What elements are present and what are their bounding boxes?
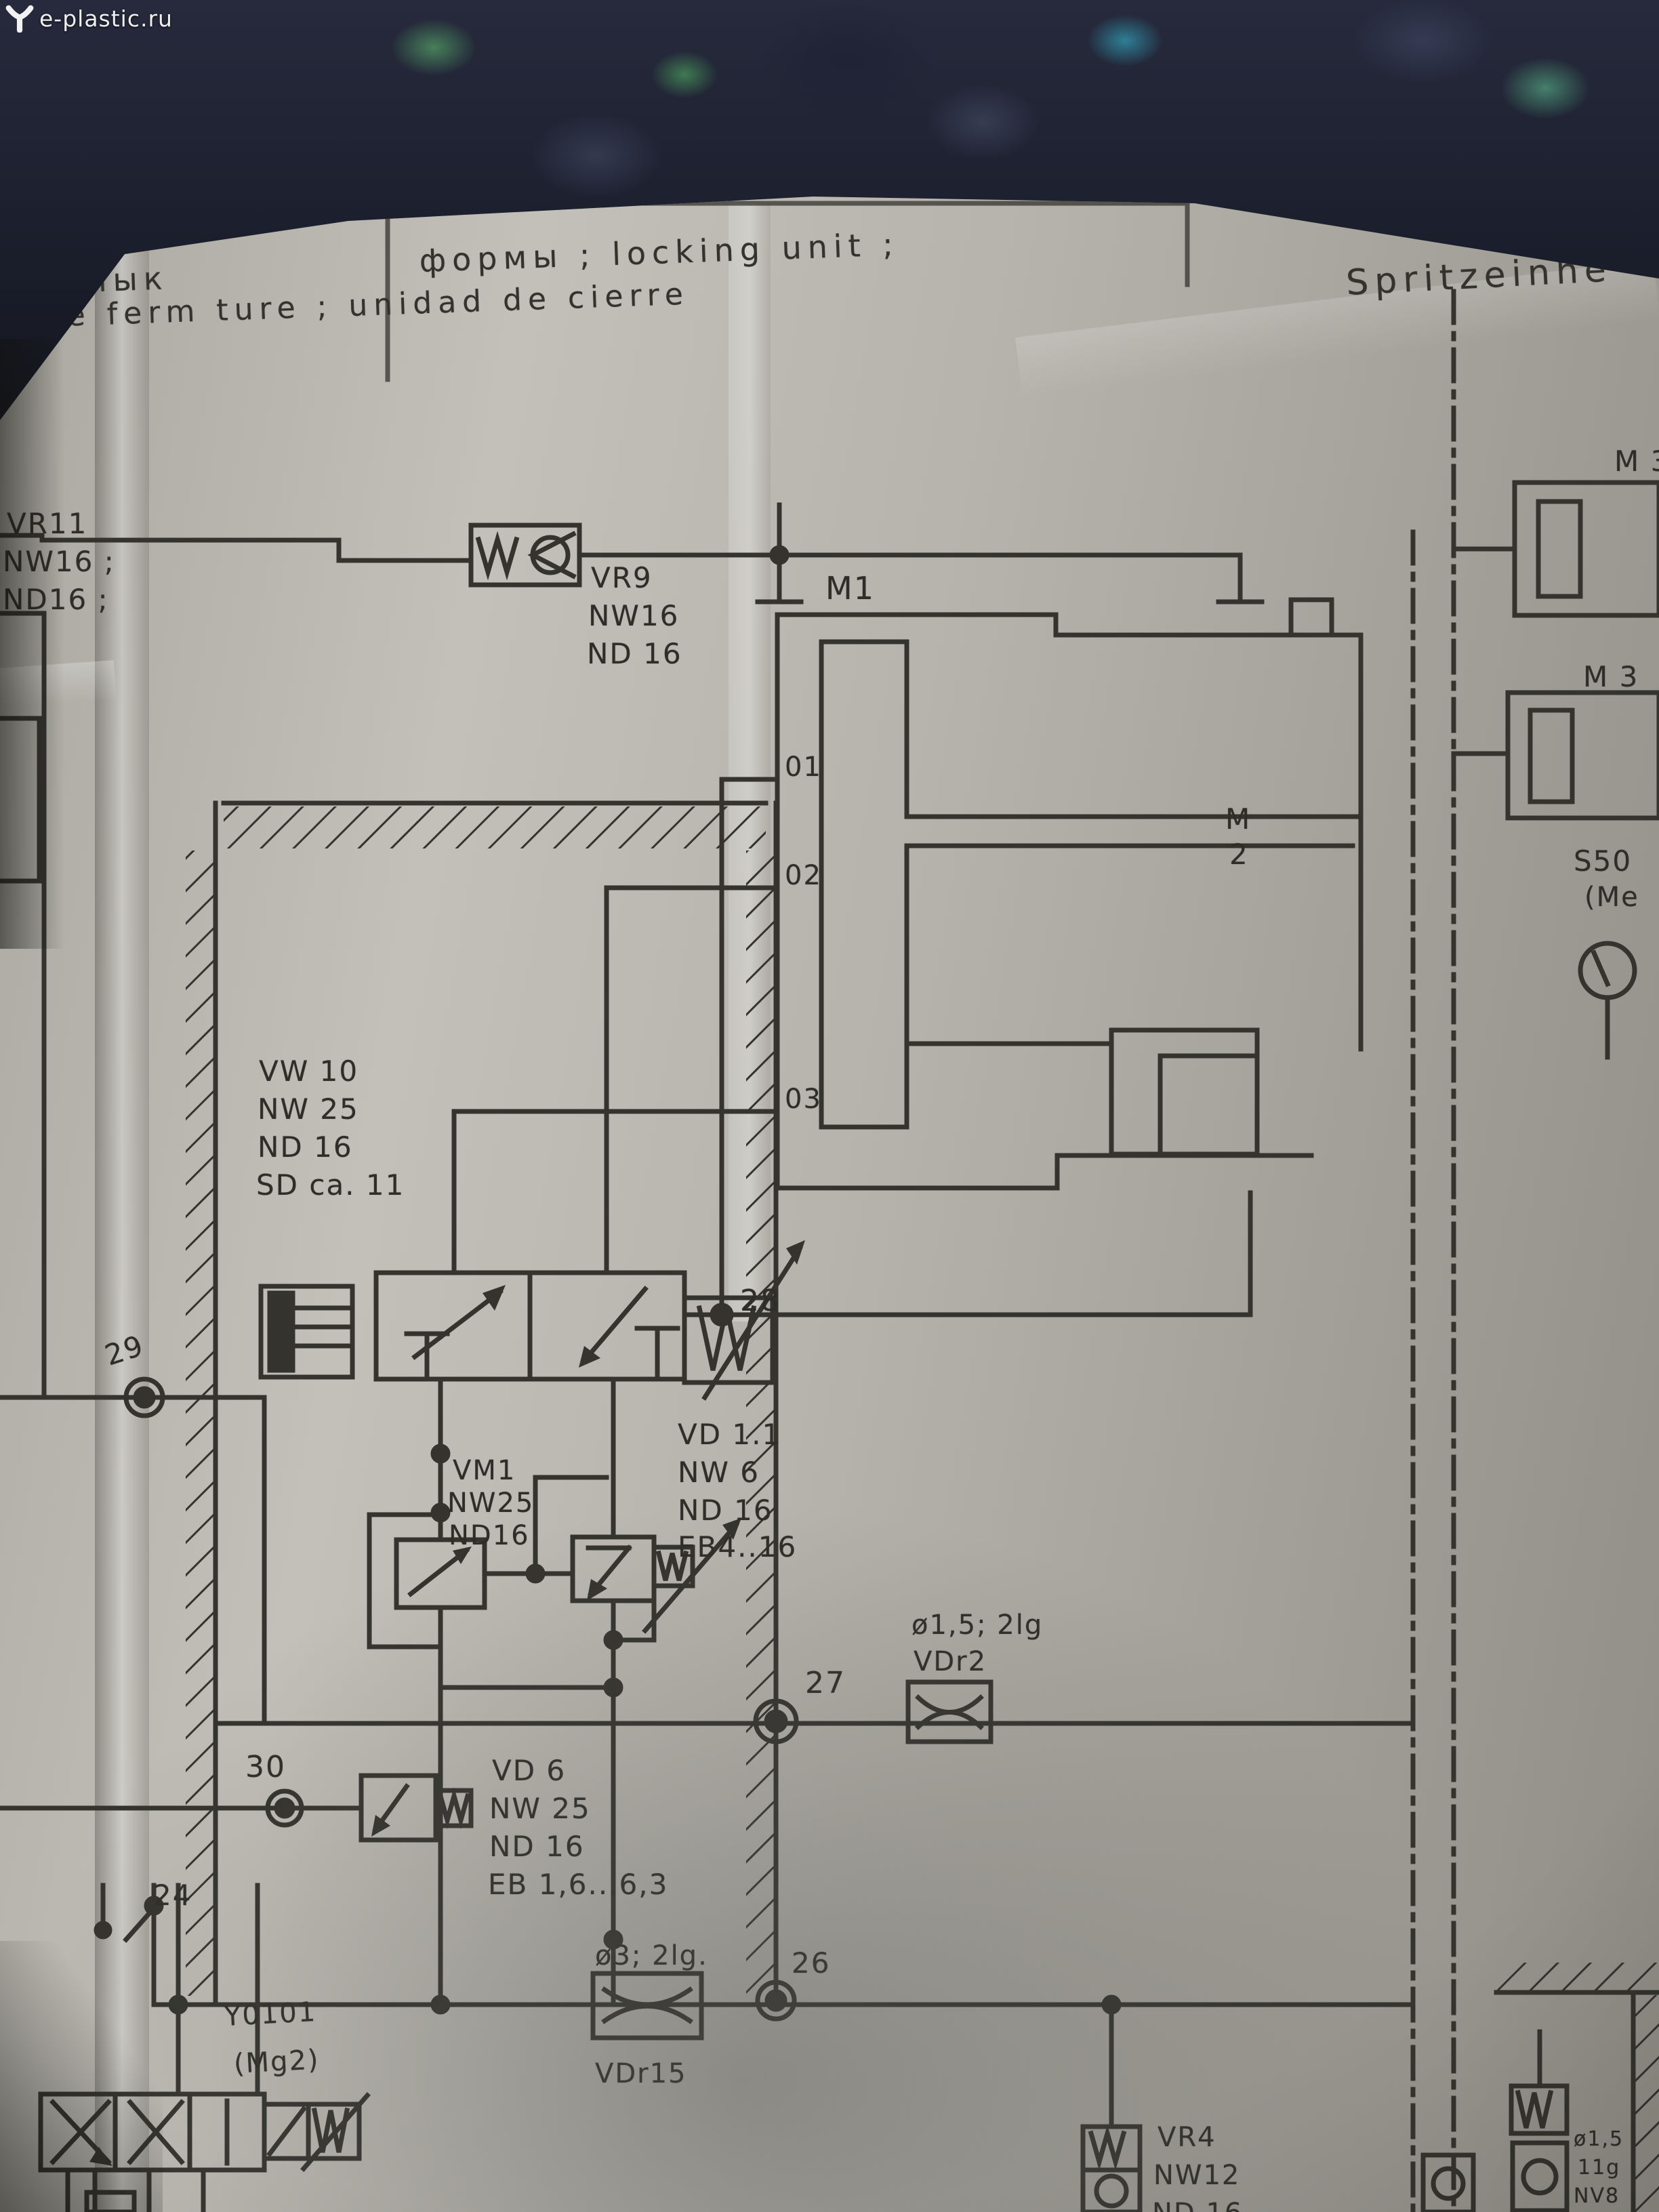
label-vw10-nd: ND 16: [258, 1133, 353, 1162]
label-vr9-nw: NW16: [588, 602, 679, 630]
e-plastic-logo-icon: [5, 4, 34, 33]
schematic-paper: п смык формы ; locking unit ; e de ferm …: [0, 0, 1659, 2212]
junction-nodes: [96, 548, 1119, 2019]
label-vr4: VR4: [1158, 2124, 1216, 2151]
label-m3-top: M 3: [1614, 447, 1659, 476]
label-vd11-nd: ND 16: [678, 1496, 773, 1525]
label-vd11-nw: NW 6: [678, 1458, 760, 1487]
cylinder-port-lines: [454, 779, 776, 1315]
label-port-03: 03: [785, 1086, 822, 1113]
label-br-nv8: NV8: [1574, 2186, 1620, 2207]
watermark-text: e-plastic.ru: [39, 5, 173, 32]
label-vm1-nw: NW25: [447, 1490, 534, 1517]
label-vw10: VW 10: [259, 1057, 359, 1086]
label-vdr2-bore: ø1,5; 2lg: [912, 1612, 1043, 1639]
label-m2-m: M: [1225, 805, 1251, 834]
label-vr9-nd: ND 16: [587, 640, 682, 668]
label-vdr15-bore: ø3; 2lg.: [595, 1942, 708, 1969]
label-vr4-nd: ND 16: [1152, 2200, 1243, 2212]
label-vd6-eb: EB 1,6...6,3: [488, 1870, 668, 1899]
label-port-02: 02: [785, 862, 822, 889]
label-s50: S50: [1574, 847, 1632, 876]
label-vm1: VM1: [453, 1457, 516, 1484]
label-br-bore: ø1,5: [1574, 2129, 1624, 2150]
label-vd6: VD 6: [492, 1757, 566, 1785]
photo-scene: п смык формы ; locking unit ; e de ferm …: [0, 0, 1659, 2212]
label-node-30: 30: [245, 1753, 286, 1782]
label-vdr2: VDr2: [914, 1648, 987, 1675]
label-m2-2: 2: [1229, 840, 1249, 869]
label-vd11-eb: EB4..16: [678, 1533, 797, 1561]
shadow-left-edge: [0, 339, 64, 949]
label-vw10-nw: NW 25: [258, 1095, 359, 1124]
watermark: e-plastic.ru: [5, 4, 173, 33]
label-m1: M1: [825, 573, 875, 604]
shadow-bottom-left: [0, 1941, 163, 2212]
vr4-check-valve-symbol: [1083, 2005, 1140, 2212]
label-s50-mess: (Me: [1584, 884, 1639, 911]
label-node-24: 24: [153, 1881, 192, 1910]
label-vd11: VD 1.1: [678, 1420, 781, 1449]
m1-clamp-cylinder-symbol: [777, 600, 1361, 1188]
label-vr9: VR9: [591, 564, 653, 592]
label-node-28: 28: [740, 1286, 781, 1316]
label-vw10-sd: SD ca. 11: [256, 1171, 405, 1200]
label-vr4-nw: NW12: [1153, 2162, 1240, 2189]
machine-plate-hatched-walls: [186, 803, 776, 2005]
vr9-check-valve-symbol: [471, 525, 579, 585]
label-port-01: 01: [785, 754, 822, 781]
label-y0101-mg2: (Mg2): [233, 2046, 320, 2078]
label-y0101: Y0101: [224, 1999, 317, 2030]
label-node-26: 26: [792, 1949, 830, 1978]
label-node-27: 27: [805, 1668, 846, 1698]
label-vd6-nw: NW 25: [489, 1795, 591, 1823]
label-vdr15: VDr15: [595, 2060, 687, 2087]
spritzeinheit-section-lines: [1413, 291, 1659, 2212]
label-br-11g: 11g: [1578, 2158, 1620, 2178]
label-vd6-nd: ND 16: [489, 1832, 585, 1861]
hydraulic-schematic-drawing: [0, 0, 1659, 2212]
label-m3-mid: M 3: [1583, 663, 1639, 691]
label-vm1-nd: ND16: [449, 1522, 530, 1549]
